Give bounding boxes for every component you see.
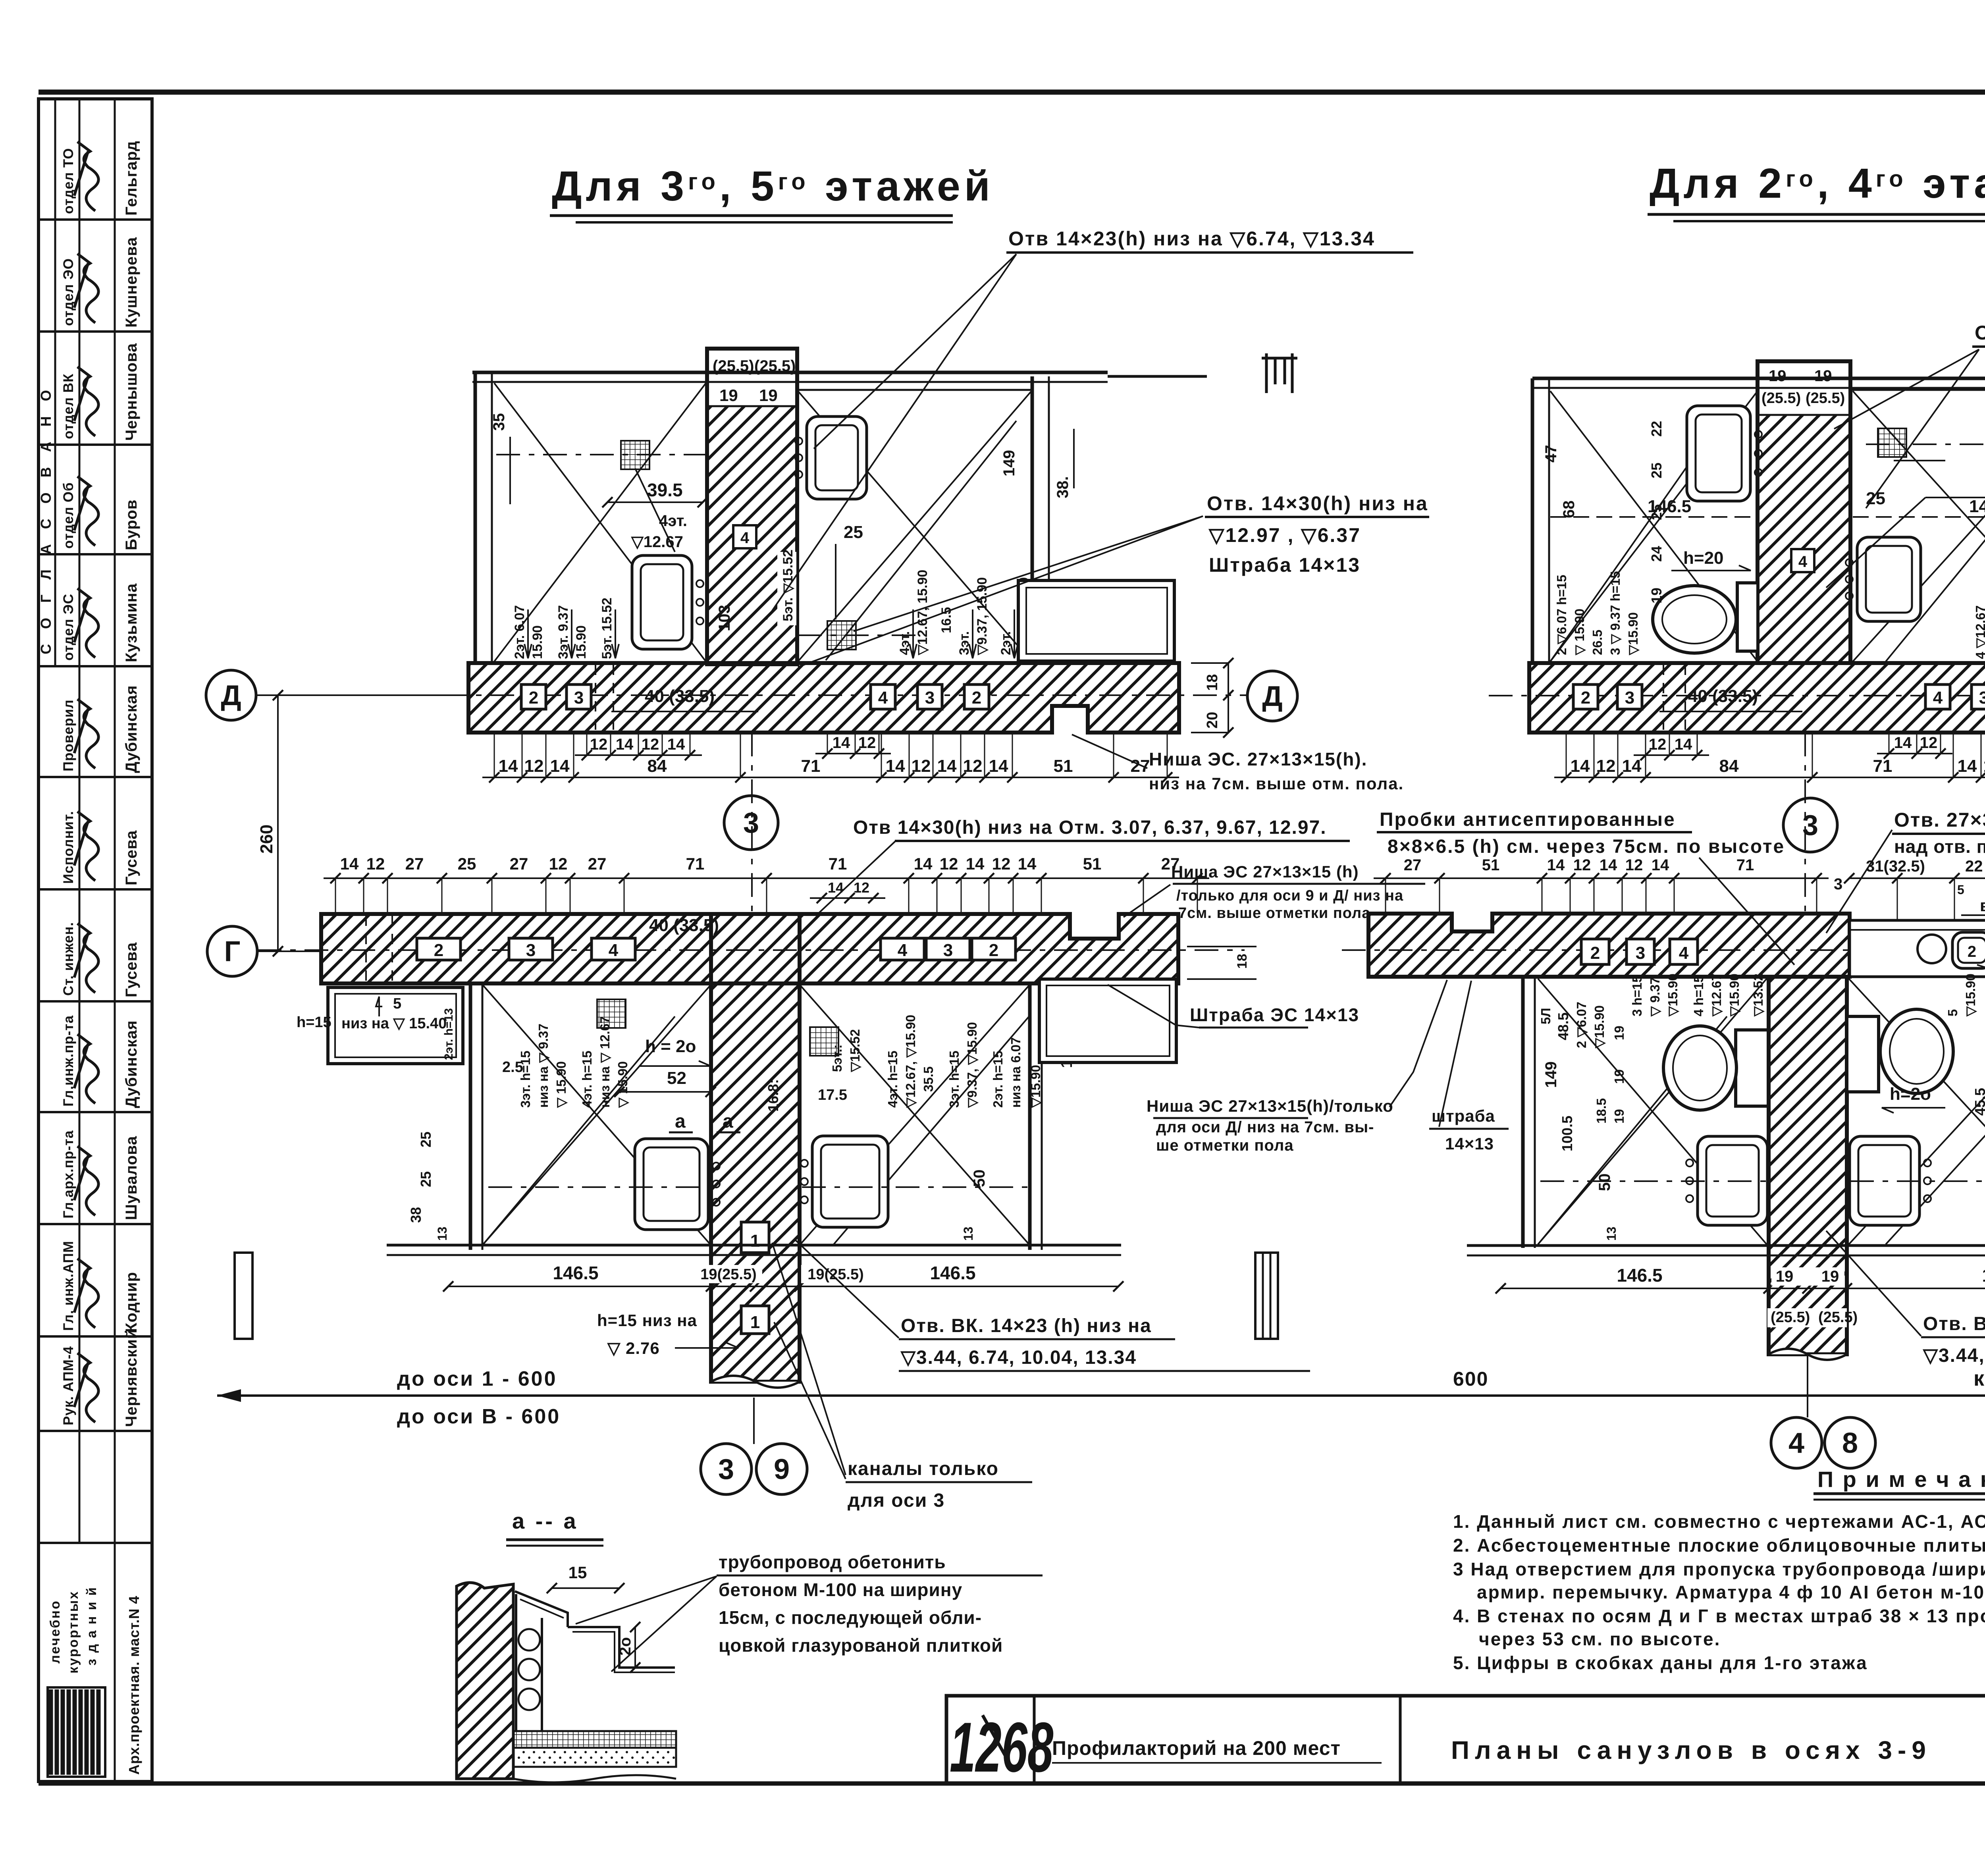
svg-text:52: 52 [667,1068,686,1088]
svg-text:27: 27 [510,854,528,873]
svg-text:2: 2 [529,688,538,708]
svg-text:18: 18 [1235,954,1250,969]
svg-text:3: 3 [574,688,584,708]
svg-text:П р и м е ч а н и я :: П р и м е ч а н и я : [1817,1467,1985,1492]
svg-text:14: 14 [828,879,844,896]
svg-text:Г: Г [224,936,241,968]
svg-text:14: 14 [1571,756,1590,776]
svg-text:38.: 38. [1054,476,1072,498]
svg-text:2. Асбестоцементные плоские: 2. Асбестоцементные плоские облицовочные… [1453,1535,1985,1556]
svg-text:2: 2 [1590,943,1600,963]
svg-text:103: 103 [716,605,733,631]
svg-text:12: 12 [524,756,544,776]
svg-text:2 ▽6.07: 2 ▽6.07 [1574,1002,1589,1048]
svg-text:12: 12 [854,879,869,896]
svg-text:5эт. 15.52: 5эт. 15.52 [599,598,615,659]
svg-text:19: 19 [1612,1069,1627,1084]
svg-text:146.5: 146.5 [930,1263,975,1283]
svg-text:С О Г Л А С О В А Н О: С О Г Л А С О В А Н О [38,384,54,654]
svg-text:Коднир: Коднир [123,1272,140,1332]
svg-text:71: 71 [829,854,847,873]
svg-text:12: 12 [940,854,958,873]
svg-text:4эт. h=15: 4эт. h=15 [885,1051,900,1108]
svg-text:14: 14 [340,854,359,873]
svg-text:19: 19 [1821,1268,1839,1285]
svg-text:Кушнерева: Кушнерева [123,237,140,328]
svg-text:h = 2o: h = 2o [645,1037,696,1056]
svg-text:146.5: 146.5 [1617,1265,1662,1286]
svg-text:4. В стенах по осям Д и: 4. В стенах по осям Д и Г в местах штраб… [1453,1606,1985,1626]
svg-text:Кузьмина: Кузьмина [123,583,140,662]
svg-text:2эт.: 2эт. [998,631,1014,655]
svg-text:27: 27 [588,854,607,873]
svg-text:4: 4 [1933,688,1943,708]
svg-text:22: 22 [1965,858,1983,875]
svg-text:13: 13 [1604,1226,1619,1241]
svg-text:Отв 14×30(h) низ на Отм. 3.0: Отв 14×30(h) низ на Отм. 3.07, 6.37, 9.6… [853,817,1327,838]
svg-text:над отв. положить монолит. Арм: над отв. положить монолит. Армир. перемы… [1894,836,1985,857]
svg-text:14: 14 [1600,856,1617,874]
svg-text:Дубинская: Дубинская [123,685,140,773]
svg-text:Планы санузлов в ося: Планы санузлов в осях 3-9 [1451,1736,1931,1764]
svg-text:Отв. ВК. 14×23 (h) низ н: Отв. ВК. 14×23 (h) низ на [1923,1313,1985,1334]
svg-text:Штраба ЭС 14×13: Штраба ЭС 14×13 [1190,1005,1359,1025]
svg-text:3эт.: 3эт. [957,631,972,655]
svg-text:3эт. h=15: 3эт. h=15 [947,1051,962,1108]
svg-text:14: 14 [616,736,634,753]
svg-text:▽15.90: ▽15.90 [1665,974,1680,1017]
svg-text:12: 12 [858,734,876,752]
svg-text:▽ 9.37: ▽ 9.37 [1648,977,1662,1017]
svg-text:▽12.67: ▽12.67 [631,533,683,551]
svg-text:71: 71 [1873,756,1892,776]
svg-text:курортных: курортных [66,1591,81,1674]
svg-text:20: 20 [1204,712,1221,729]
svg-text:40 (33.5): 40 (33.5) [645,686,715,706]
svg-text:3: 3 [1636,943,1645,963]
svg-text:4 h=15: 4 h=15 [1691,975,1706,1016]
svg-text:14: 14 [1958,756,1977,776]
svg-text:149: 149 [1542,1061,1560,1088]
svg-text:19: 19 [719,386,738,405]
svg-text:2: 2 [972,688,981,708]
svg-text:15см, с последующей обли-: 15см, с последующей обли- [719,1607,982,1628]
svg-text:39.5: 39.5 [647,480,683,500]
svg-text:5. Цифры в скобках даны: 5. Цифры в скобках даны для 1-го этажа [1453,1652,1868,1673]
svg-text:Отв. 27×30(h) низ на ▽3.07, 6: Отв. 27×30(h) низ на ▽3.07, 6.37, 9.67, … [1894,809,1985,831]
svg-text:Отв. 14×30(h) низ на: Отв. 14×30(h) низ на [1975,322,1985,344]
svg-text:27: 27 [1131,756,1150,776]
svg-text:71: 71 [686,854,705,873]
svg-text:4эт.: 4эт. [897,631,912,655]
svg-text:лечебно: лечебно [48,1600,63,1664]
svg-text:а: а [675,1111,686,1132]
svg-text:14: 14 [833,734,850,752]
svg-text:▽12.67, 15.90: ▽12.67, 15.90 [915,570,930,656]
svg-text:14: 14 [1547,856,1565,874]
svg-text:Гл.арх.пр-та: Гл.арх.пр-та [61,1130,76,1219]
svg-text:16.8:: 16.8: [765,1079,781,1112]
svg-text:Отв. ВК. 14×23 (h) низ на: Отв. ВК. 14×23 (h) низ на [901,1315,1152,1336]
svg-text:4: 4 [1798,553,1808,571]
svg-text:12: 12 [1649,736,1667,753]
svg-text:отдел ЭО: отдел ЭО [61,258,76,326]
svg-text:2эт. h=15: 2эт. h=15 [991,1051,1005,1108]
svg-text:14: 14 [499,756,518,776]
svg-text:к оси 5 - 600: к оси 5 - 600 [1973,1367,1985,1390]
svg-text:4 ▽12.67: 4 ▽12.67 [1973,605,1985,659]
svg-text:12: 12 [1573,856,1591,874]
svg-text:4: 4 [878,688,888,708]
svg-text:h=15: h=15 [297,1014,331,1031]
svg-text:Профилакторий на 200 мест: Профилакторий на 200 мест [1052,1737,1341,1759]
svg-text:12: 12 [590,736,608,753]
svg-text:цовкой глазурованой плиткой: цовкой глазурованой плиткой [719,1635,1003,1656]
svg-text:4: 4 [1788,1427,1804,1459]
svg-text:19: 19 [1776,1268,1794,1285]
svg-text:▽ 15.90: ▽ 15.90 [1572,609,1587,656]
svg-text:Для 2го, 4го этажей: Для 2го, 4го этажей [1650,160,1985,207]
svg-text:Д: Д [221,680,241,711]
svg-text:(25.5): (25.5) [1771,1309,1810,1326]
svg-text:40 (33.5): 40 (33.5) [1688,686,1758,706]
svg-text:трубопровод обетонить: трубопровод обетонить [719,1552,946,1572]
svg-text:3: 3 [1625,688,1634,708]
svg-text:▽15.90: ▽15.90 [1626,612,1640,656]
svg-text:14: 14 [1622,756,1642,776]
svg-text:14: 14 [550,756,570,776]
svg-text:12: 12 [1920,734,1938,752]
svg-text:45.5: 45.5 [1972,1088,1985,1116]
svg-text:8×8×6.5 (h) см. через 75см. по: 8×8×6.5 (h) см. через 75см. по высоте [1388,836,1785,857]
svg-text:71: 71 [1736,856,1754,874]
svg-text:4эт. h=15: 4эт. h=15 [580,1051,594,1108]
svg-text:14: 14 [1652,856,1669,874]
svg-text:26.5: 26.5 [1590,630,1605,655]
svg-text:27: 27 [405,854,424,873]
svg-text:8: 8 [1842,1427,1858,1459]
svg-text:19: 19 [759,386,778,405]
svg-text:14: 14 [667,736,685,753]
svg-text:5: 5 [393,995,401,1012]
svg-text:Арх.проектная. маст.N 4: Арх.проектная. маст.N 4 [126,1596,142,1775]
svg-text:38: 38 [408,1207,424,1223]
svg-text:1: 1 [750,1313,760,1332]
svg-text:низ на ▽ 9.37: низ на ▽ 9.37 [536,1024,551,1108]
svg-text:низ на ▽ 12.67: низ на ▽ 12.67 [597,1016,612,1108]
svg-text:12: 12 [366,854,385,873]
svg-text:14: 14 [1018,854,1037,873]
svg-text:2: 2 [989,941,998,960]
svg-text:отдел ЭС: отдел ЭС [61,594,76,661]
svg-text:4: 4 [740,529,750,547]
svg-text:14: 14 [1894,734,1912,752]
svg-text:146.5: 146.5 [553,1263,598,1283]
svg-text:14: 14 [1675,736,1692,753]
svg-text:25: 25 [844,523,863,542]
svg-text:Дубинская: Дубинская [123,1020,140,1108]
svg-text:31(32.5): 31(32.5) [1866,858,1925,875]
svg-text:армир. перемычку. Арматура: армир. перемычку. Арматура 4 ф 10 АI бет… [1477,1582,1985,1602]
svg-text:25: 25 [418,1171,434,1187]
svg-text:17.5: 17.5 [818,1087,847,1103]
svg-text:35: 35 [490,413,508,431]
svg-text:18.5: 18.5 [1594,1098,1609,1124]
svg-text:600: 600 [1453,1368,1488,1390]
svg-text:25: 25 [1648,463,1665,478]
svg-text:14×13: 14×13 [1445,1134,1494,1153]
svg-text:h=15 низ на: h=15 низ на [597,1311,697,1330]
svg-text:260: 260 [257,825,276,854]
svg-text:12: 12 [912,756,931,776]
svg-text:19: 19 [1612,1109,1627,1124]
svg-text:3эт. 9.37: 3эт. 9.37 [556,605,571,659]
svg-text:13: 13 [435,1226,449,1241]
svg-text:(25.5): (25.5) [1818,1309,1858,1326]
svg-text:▽15.52: ▽15.52 [848,1029,862,1072]
svg-text:27: 27 [1161,854,1180,873]
svg-text:▽12.67: ▽12.67 [1709,974,1724,1017]
svg-text:▽15.90: ▽15.90 [1963,974,1978,1017]
svg-text:35.5: 35.5 [921,1066,936,1092]
svg-text:48.5: 48.5 [1555,1012,1571,1040]
svg-text:15.90: 15.90 [574,625,589,659]
svg-text:▽3.44, 6.74, 10.04, 13.34: ▽3.44, 6.74, 10.04, 13.34 [900,1347,1137,1368]
svg-text:84: 84 [1719,756,1739,776]
svg-text:Пробки антисептированные: Пробки антисептированные [1380,809,1676,830]
svg-text:84: 84 [648,756,667,776]
svg-text:каналы только: каналы только [848,1458,999,1479]
svg-text:Буров: Буров [123,499,140,550]
svg-text:Ниша ЭС 27×13×15(h)/только: Ниша ЭС 27×13×15(h)/только [1147,1097,1393,1115]
svg-text:Проверил: Проверил [61,699,76,771]
svg-text:(25.5): (25.5) [1806,390,1845,407]
svg-text:3: 3 [1979,688,1985,708]
svg-text:5Л: 5Л [1538,1008,1553,1024]
svg-text:5эт. ▽15.52: 5эт. ▽15.52 [781,549,796,621]
svg-text:Ниша ЭС. 27×13×15(h).: Ниша ЭС. 27×13×15(h). [1149,749,1367,769]
svg-text:3 h=15: 3 h=15 [1630,975,1644,1016]
svg-text:до оси В - 600: до оси В - 600 [397,1405,561,1428]
svg-text:1: 1 [750,1231,760,1251]
svg-text:до оси 1 - 600: до оси 1 - 600 [397,1367,557,1390]
svg-text:1. Данный лист см. совмес: 1. Данный лист см. совместно с чертежами… [1453,1511,1985,1532]
svg-text:низ на 6.07: низ на 6.07 [1008,1037,1023,1108]
svg-text:(25.5): (25.5) [1761,390,1801,407]
svg-text:149: 149 [1000,450,1018,476]
svg-text:через 53 см. по высоте.: через 53 см. по высоте. [1479,1629,1721,1649]
svg-text:19(25.5): 19(25.5) [807,1266,864,1283]
svg-text:▽3.44, ▽6.74, ▽ 10.04, ▽ 13: ▽3.44, ▽6.74, ▽ 10.04, ▽ 13.34 [1922,1345,1985,1366]
svg-text:в. ст.: в. ст. [1980,896,1985,915]
svg-text:5эт.:: 5эт.: [830,1044,844,1072]
svg-text:Д: Д [1262,681,1282,712]
svg-text:отдел Об: отдел Об [61,482,76,549]
svg-text:з д а н и й: з д а н и й [84,1586,99,1666]
svg-text:▽9.37, ▽15.90: ▽9.37, ▽15.90 [965,1022,979,1108]
svg-text:бетоном М-100 на ширину: бетоном М-100 на ширину [719,1579,962,1600]
svg-text:2.5: 2.5 [502,1059,523,1076]
svg-text:а -- а: а -- а [512,1508,578,1533]
svg-text:18: 18 [1204,674,1221,691]
svg-text:2эт. 6.07: 2эт. 6.07 [512,605,527,659]
svg-text:27: 27 [1404,856,1422,874]
svg-text:отдел ВК: отдел ВК [61,374,76,439]
svg-text:146.5: 146.5 [1982,1265,1985,1286]
svg-text:12: 12 [1625,856,1643,874]
svg-text:3: 3 [718,1454,734,1485]
svg-text:Чернышова: Чернышова [123,343,140,441]
svg-text:25: 25 [458,854,476,873]
svg-text:h=20: h=20 [1683,548,1724,568]
svg-text:2: 2 [434,941,443,960]
svg-text:▽13.52: ▽13.52 [1751,974,1765,1017]
svg-text:Ст. инжен.: Ст. инжен. [61,922,76,996]
svg-text:3: 3 [925,688,935,708]
svg-text:51: 51 [1054,756,1073,776]
svg-text:100.5: 100.5 [1559,1116,1575,1151]
svg-text:15.90: 15.90 [530,625,545,659]
svg-text:47: 47 [1542,445,1560,463]
svg-text:Шувалова: Шувалова [123,1136,140,1220]
svg-text:14: 14 [937,756,957,776]
svg-text:19: 19 [1814,367,1832,385]
svg-text:2эт. h=13: 2эт. h=13 [442,1008,455,1060]
svg-text:2: 2 [1968,943,1976,960]
svg-text:Гусева: Гусева [123,830,140,885]
svg-text:Рук. АПМ-4: Рук. АПМ-4 [61,1346,76,1425]
svg-text:▽15.90: ▽15.90 [1727,974,1742,1017]
svg-text:50: 50 [1596,1174,1613,1192]
svg-text:71: 71 [801,756,821,776]
svg-text:25: 25 [418,1132,434,1147]
svg-text:Чернявский: Чернявский [123,1329,140,1427]
svg-text:14: 14 [989,756,1008,776]
svg-text:4эт.: 4эт. [659,512,687,530]
svg-text:для оси Д/ низ на 7см. вы-: для оси Д/ низ на 7см. вы- [1156,1118,1374,1136]
svg-text:146.5: 146.5 [1969,497,1985,516]
svg-text:40 (33.5): 40 (33.5) [649,916,719,935]
svg-text:19: 19 [1612,1026,1627,1040]
svg-text:12: 12 [992,854,1011,873]
svg-text:24: 24 [1648,546,1665,562]
svg-text:Гл. инж.АПМ: Гл. инж.АПМ [61,1241,76,1331]
svg-text:12: 12 [1596,756,1616,776]
svg-text:для оси 3: для оси 3 [848,1490,945,1511]
svg-text:68: 68 [1560,501,1578,519]
svg-text:12: 12 [549,854,568,873]
svg-text:51: 51 [1083,854,1102,873]
svg-text:9: 9 [774,1454,790,1485]
svg-text:ше отметки пола: ше отметки пола [1156,1137,1294,1154]
svg-text:Для 3го, 5го этажей: Для 3го, 5го этажей [552,163,994,210]
svg-text:4: 4 [898,941,908,960]
svg-text:Штраба 14×13: Штраба 14×13 [1209,554,1361,576]
svg-text:▽ 15.90: ▽ 15.90 [554,1061,569,1108]
svg-text:3: 3 [743,807,759,839]
svg-text:2 ▽6.07 h=15: 2 ▽6.07 h=15 [1554,575,1569,655]
svg-text:3: 3 [526,941,536,960]
svg-text:19(25.5): 19(25.5) [700,1266,757,1283]
svg-text:4: 4 [1679,943,1689,963]
svg-text:19: 19 [1769,367,1786,385]
svg-text:Исполнит.: Исполнит. [61,811,76,884]
svg-text:146.5: 146.5 [1648,497,1691,516]
svg-text:Гельгард: Гельгард [123,141,140,216]
svg-text:13: 13 [961,1226,975,1241]
svg-text:низ на ▽ 15.40: низ на ▽ 15.40 [341,1015,447,1032]
svg-text:▽15.90: ▽15.90 [1592,1005,1607,1049]
svg-text:12: 12 [1983,756,1985,776]
svg-text:3: 3 [943,941,953,960]
svg-text:14: 14 [914,854,933,873]
svg-text:14: 14 [886,756,905,776]
svg-text:12: 12 [642,736,659,753]
svg-text:15: 15 [569,1563,587,1582]
svg-text:5: 5 [1945,1009,1960,1016]
svg-text:22: 22 [1648,421,1665,437]
svg-text:Отв. 14×30(h) низ на: Отв. 14×30(h) низ на [1207,492,1428,515]
svg-text:14: 14 [966,854,985,873]
svg-text:3 Над отверстием для пр: 3 Над отверстием для пропуска трубопрово… [1453,1559,1985,1579]
svg-text:▽12.67, ▽15.90: ▽12.67, ▽15.90 [903,1015,918,1108]
svg-text:Гл.инж.пр-та: Гл.инж.пр-та [61,1015,76,1107]
svg-text:3: 3 [1802,810,1818,841]
svg-text:3 ▽ 9.37 h=15: 3 ▽ 9.37 h=15 [1608,571,1623,655]
svg-text:19: 19 [1648,588,1665,603]
svg-text:/только для оси 9 и Д/ низ на: /только для оси 9 и Д/ низ на [1176,887,1403,904]
svg-text:5: 5 [1957,883,1964,897]
svg-text:51: 51 [1482,856,1500,874]
svg-text:отдел ТО: отдел ТО [61,148,76,214]
svg-text:7см. выше отметки пола: 7см. выше отметки пола [1178,905,1370,922]
svg-text:Гусева: Гусева [123,942,140,997]
svg-text:Отв 14×23(h) низ на ▽6.74, ▽1: Отв 14×23(h) низ на ▽6.74, ▽13.34 [1008,228,1375,250]
svg-text:h=2o: h=2o [1890,1084,1931,1104]
svg-text:12: 12 [963,756,983,776]
svg-text:низ на 7см. выше отм. пола.: низ на 7см. выше отм. пола. [1149,774,1404,793]
svg-text:▽ 2.76: ▽ 2.76 [607,1339,660,1357]
svg-text:3: 3 [1834,875,1842,893]
svg-text:▽ 15.90: ▽ 15.90 [615,1061,630,1108]
svg-text:4: 4 [609,941,619,960]
svg-text:▽12.97 , ▽6.37: ▽12.97 , ▽6.37 [1208,524,1361,546]
svg-text:50: 50 [971,1170,988,1188]
svg-text:2: 2 [1581,688,1590,708]
